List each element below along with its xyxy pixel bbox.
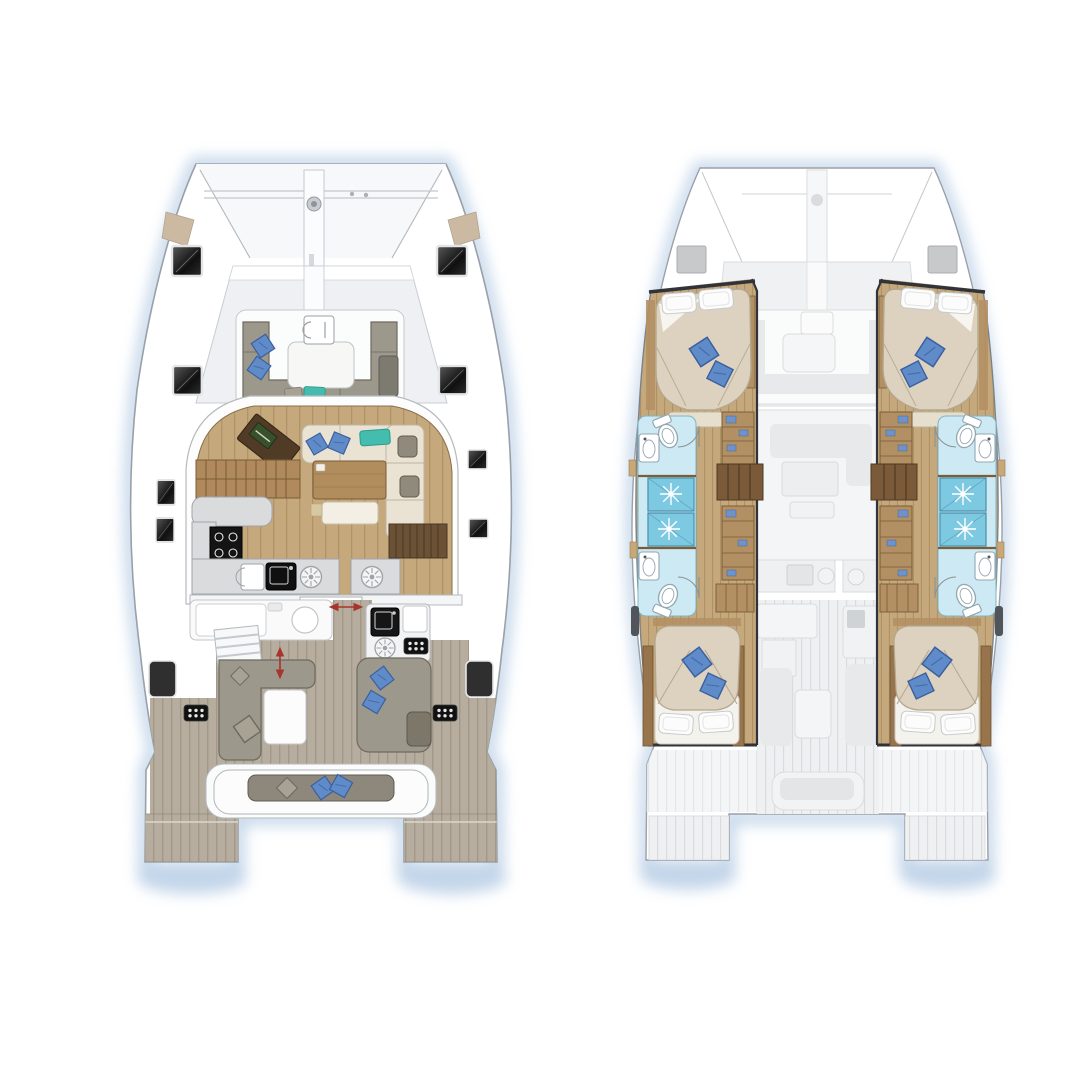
ghost-aft-deck-starboard	[878, 750, 990, 812]
ghost-cockpit-sofa	[760, 668, 792, 746]
cooktop	[210, 527, 242, 563]
dark-slat-cabinet	[389, 524, 447, 558]
ghost-dining-table	[782, 462, 838, 496]
deck-fitting	[364, 193, 368, 197]
transom-starboard	[403, 814, 499, 862]
grill-faucet	[392, 611, 396, 615]
ghost-sofa-base	[743, 374, 891, 394]
wet-bar-sink	[292, 607, 318, 633]
ghost-transom-starboard	[905, 816, 985, 860]
lower-deck-plan	[629, 168, 1005, 860]
catamaran-layout-canvas	[0, 0, 1080, 1080]
ghost-wet-bar	[757, 604, 817, 638]
ghost-saloon-sofa-right	[846, 424, 872, 486]
faucet	[289, 566, 293, 570]
main-deck-plan	[131, 164, 512, 862]
stool-1	[398, 436, 417, 457]
dining	[311, 461, 386, 524]
side-step	[379, 356, 398, 396]
bench-cube	[311, 504, 322, 516]
saloon	[186, 396, 462, 605]
ghost-bowsprit	[807, 170, 827, 266]
port-hull-interior	[629, 279, 763, 746]
chaise-arm	[407, 712, 431, 746]
forward-cockpit	[236, 310, 404, 406]
transom-port	[143, 814, 239, 862]
mast-strip	[304, 266, 324, 312]
ghost-cockpit-table	[795, 690, 831, 738]
teal-pillow	[360, 429, 391, 446]
ghost-burner	[818, 568, 834, 584]
hull-window-starboard	[466, 661, 493, 697]
cockpit-table	[264, 690, 306, 744]
floorplan-svg	[0, 0, 1080, 1080]
ghost-door	[801, 312, 833, 334]
hull-window-port	[149, 661, 176, 697]
starboard-hull-interior	[871, 279, 1005, 746]
ghost-burner	[848, 569, 864, 585]
galley-cover	[403, 606, 427, 632]
bow-hatch-starboard	[928, 246, 957, 273]
outdoor-galley	[366, 604, 430, 662]
aft-bench-group	[206, 764, 436, 818]
ghost-bench-cushion	[780, 778, 854, 800]
chaise-lounge	[357, 658, 431, 752]
ghost-sink	[787, 565, 813, 585]
dining-bench	[322, 502, 378, 524]
deck-fitting	[350, 192, 354, 196]
ghost-transom-port	[649, 816, 729, 860]
tray	[316, 464, 325, 471]
ghost-grill	[847, 610, 865, 628]
ghost-mast-strip	[807, 262, 827, 314]
ghost-chaise	[845, 664, 877, 746]
windlass-center	[311, 201, 317, 207]
port-steps-slats	[196, 460, 300, 498]
ghost-bench	[790, 502, 834, 518]
saloon-front-door	[304, 316, 334, 344]
ghost-forward-table	[783, 334, 835, 372]
wet-bar-handle	[268, 603, 282, 611]
stool-2	[400, 476, 419, 497]
ghost-windlass	[811, 194, 823, 206]
bow-hatch-port	[677, 246, 706, 273]
forward-table	[288, 342, 354, 388]
ghost-aft-deck-port	[646, 750, 758, 812]
